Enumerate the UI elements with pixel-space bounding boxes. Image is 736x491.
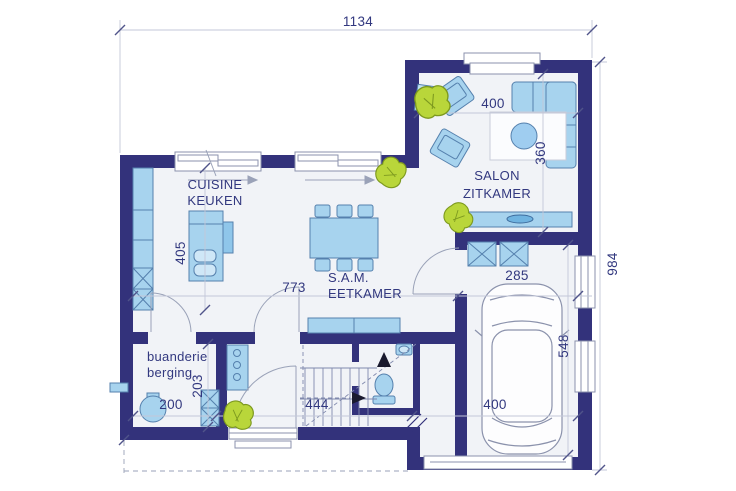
car-icon bbox=[475, 284, 569, 454]
dim-hall-width: 444 bbox=[295, 397, 339, 413]
dim-overall-depth: 984 bbox=[593, 244, 633, 284]
hall-closet-icon bbox=[227, 345, 248, 390]
floor-plan-canvas: 1134 984 CUISINE KEUKEN S.A.M. EETKAMER … bbox=[0, 0, 736, 491]
dim-living-depth: 360 bbox=[521, 133, 561, 173]
dim-living-width: 400 bbox=[471, 96, 515, 112]
stair-break-mark-icon bbox=[403, 414, 427, 436]
dim-kitchen-dining-span: 773 bbox=[272, 280, 316, 296]
room-label-living-nl: ZITKAMER bbox=[447, 186, 547, 202]
front-door-icon bbox=[229, 428, 297, 448]
toilet-icon bbox=[373, 374, 395, 404]
kitchen-counter-icon bbox=[133, 168, 153, 310]
dining-table-icon bbox=[310, 205, 378, 271]
dim-laundry-depth: 203 bbox=[178, 366, 218, 406]
dim-garage-width: 400 bbox=[473, 397, 517, 413]
living-sideboard-icon bbox=[468, 212, 572, 227]
armchair-icon bbox=[429, 128, 471, 168]
dim-garage-clear: 285 bbox=[495, 268, 539, 284]
room-label-kitchen-fr: CUISINE bbox=[170, 177, 260, 193]
room-label-kitchen-nl: KEUKEN bbox=[170, 193, 260, 209]
stair-direction-arrow-icon bbox=[377, 352, 391, 367]
room-label-dining-nl: EETKAMER bbox=[328, 286, 402, 302]
garage-cabinet-icon bbox=[468, 242, 528, 266]
garage-door-icon bbox=[424, 456, 572, 469]
room-label-dining-fr: S.A.M. bbox=[328, 270, 369, 286]
dim-garage-depth: 548 bbox=[544, 326, 584, 366]
dining-sideboard-icon bbox=[308, 318, 400, 333]
dim-kitchen-counter: 405 bbox=[161, 233, 201, 273]
staircase-icon bbox=[300, 344, 416, 426]
room-label-laundry-fr: buanderie bbox=[147, 349, 208, 365]
dim-overall-width: 1134 bbox=[328, 14, 388, 30]
